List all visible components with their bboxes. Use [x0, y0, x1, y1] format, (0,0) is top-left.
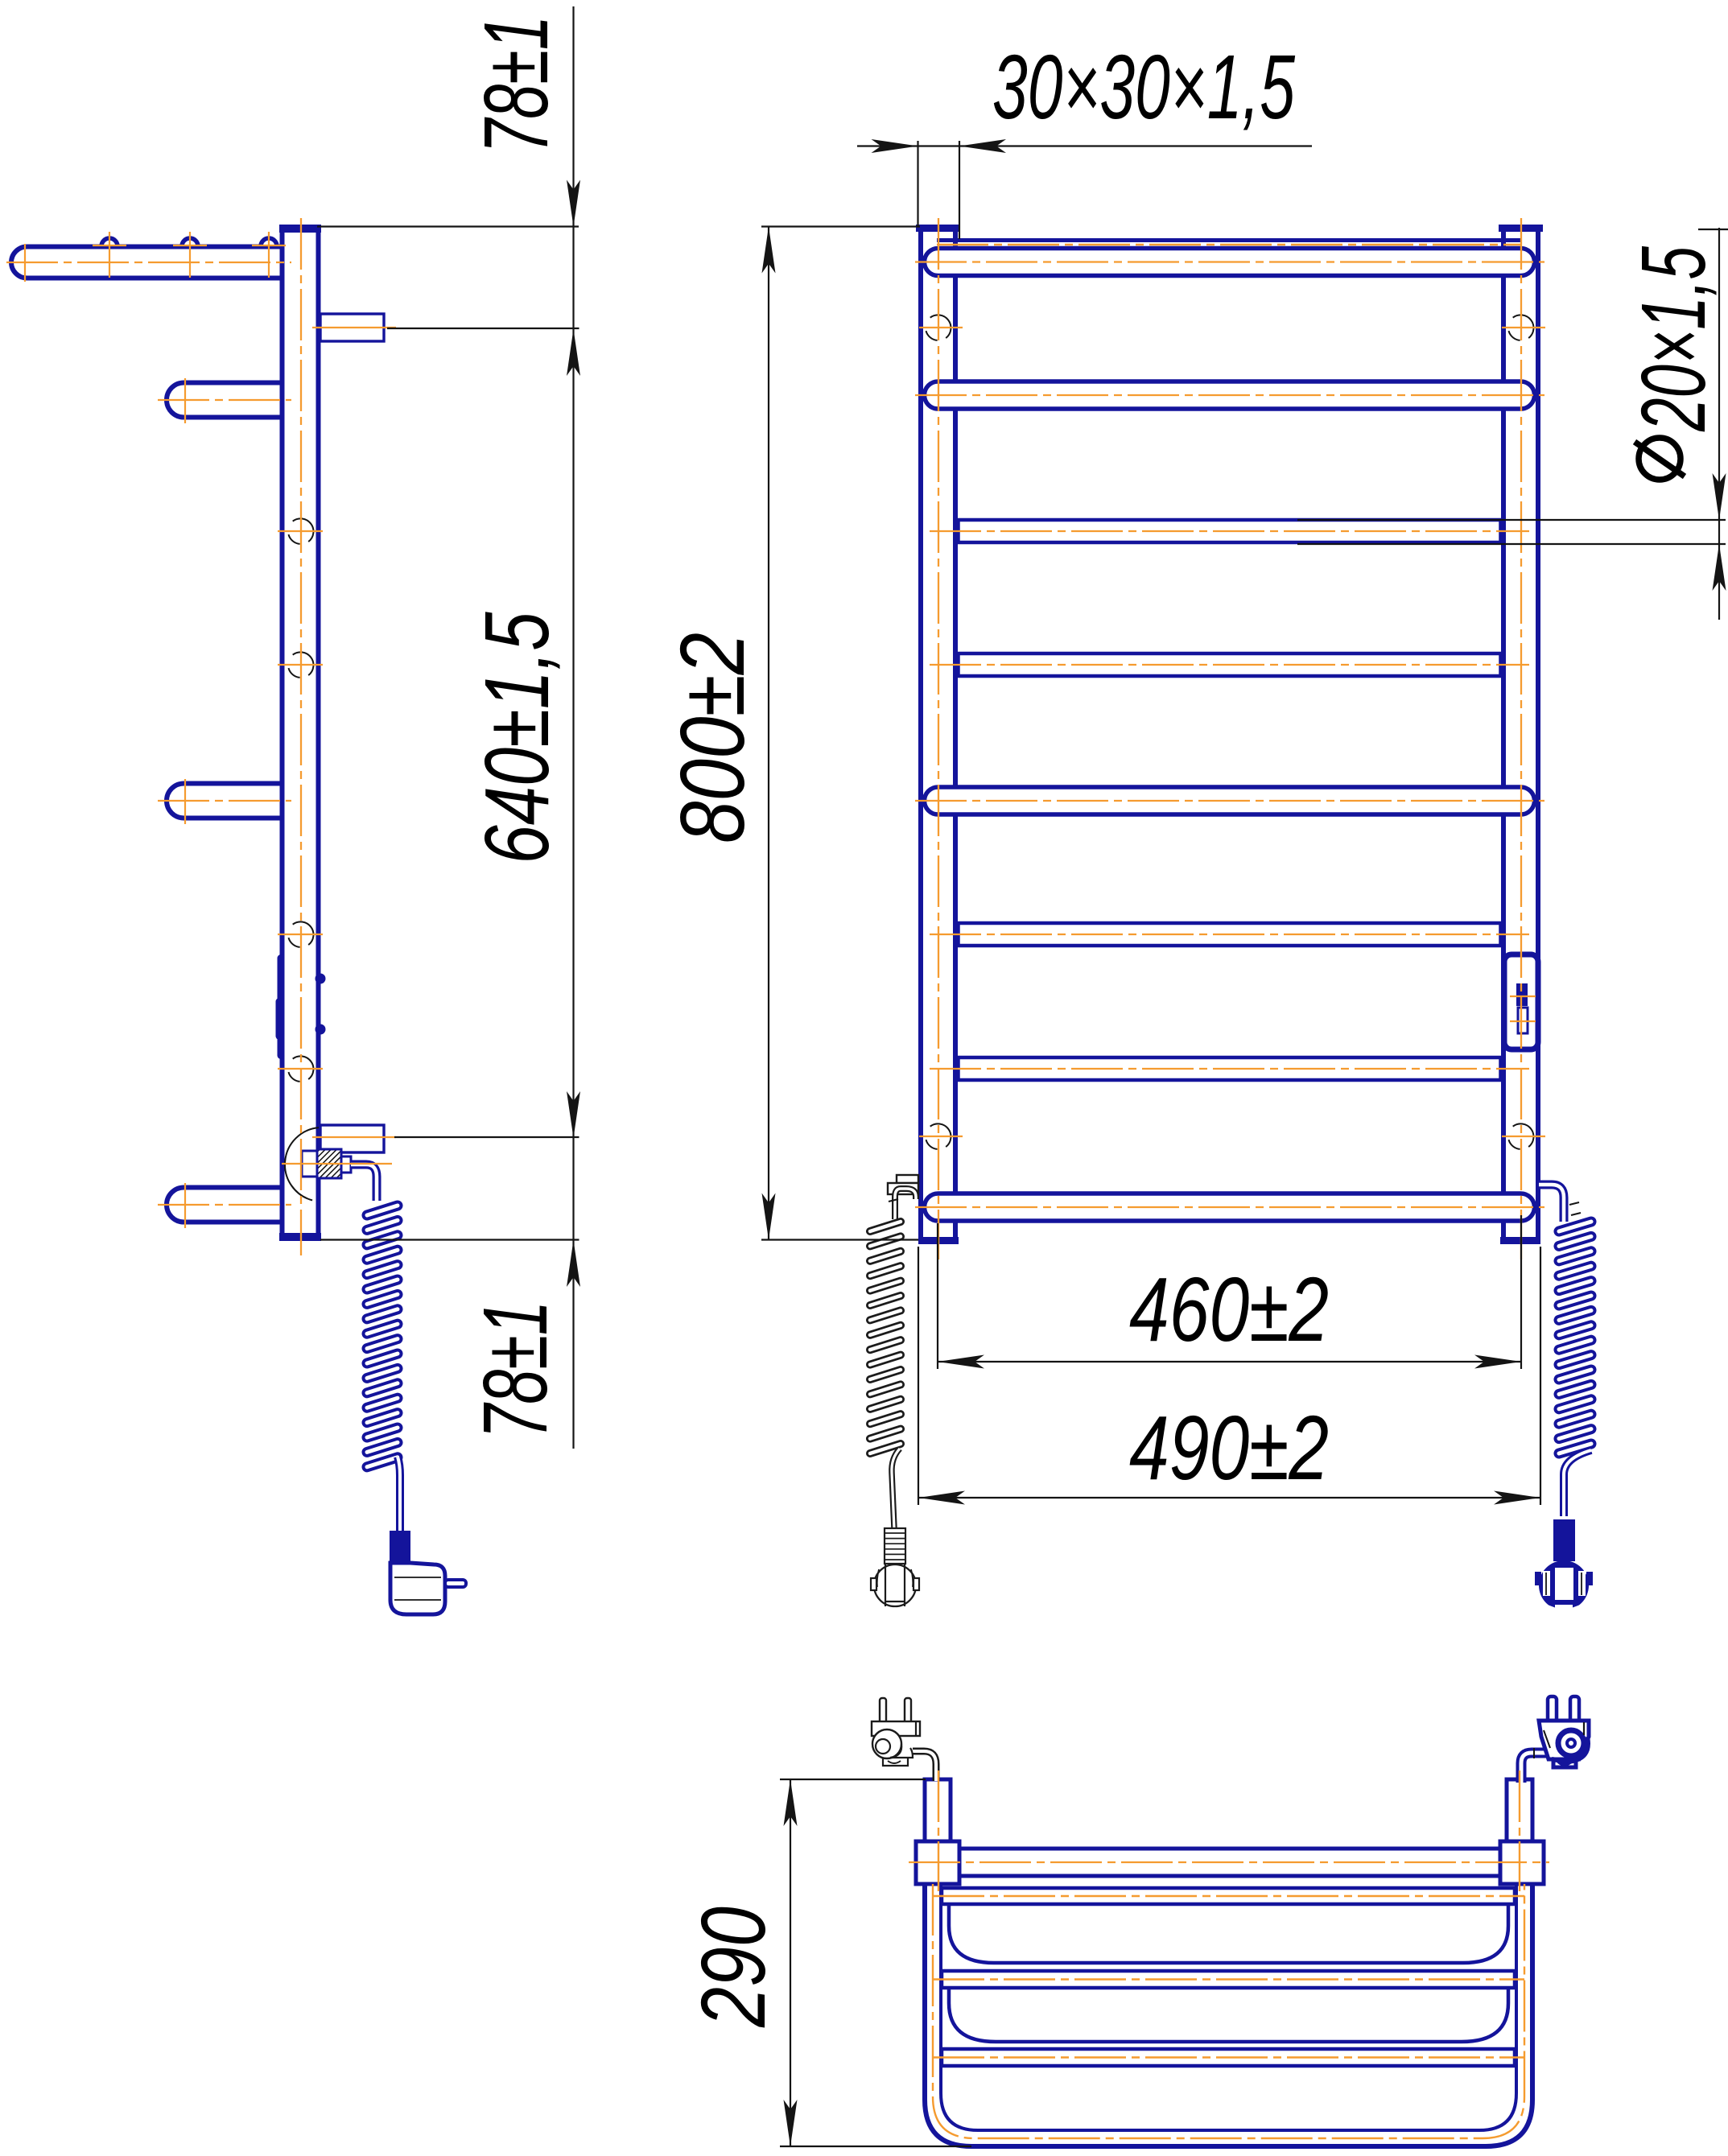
- svg-text:490±2: 490±2: [1129, 1397, 1329, 1498]
- svg-text:78±1: 78±1: [465, 15, 567, 154]
- svg-text:20×1,5: 20×1,5: [1623, 245, 1724, 431]
- svg-text:460±2: 460±2: [1129, 1259, 1329, 1360]
- svg-text:78±1: 78±1: [464, 1301, 566, 1439]
- svg-text:30×30×1,5: 30×30×1,5: [992, 36, 1296, 138]
- svg-text:290: 290: [683, 1907, 784, 2028]
- svg-text:640±1,5: 640±1,5: [466, 612, 567, 864]
- svg-text:800±2: 800±2: [662, 633, 763, 843]
